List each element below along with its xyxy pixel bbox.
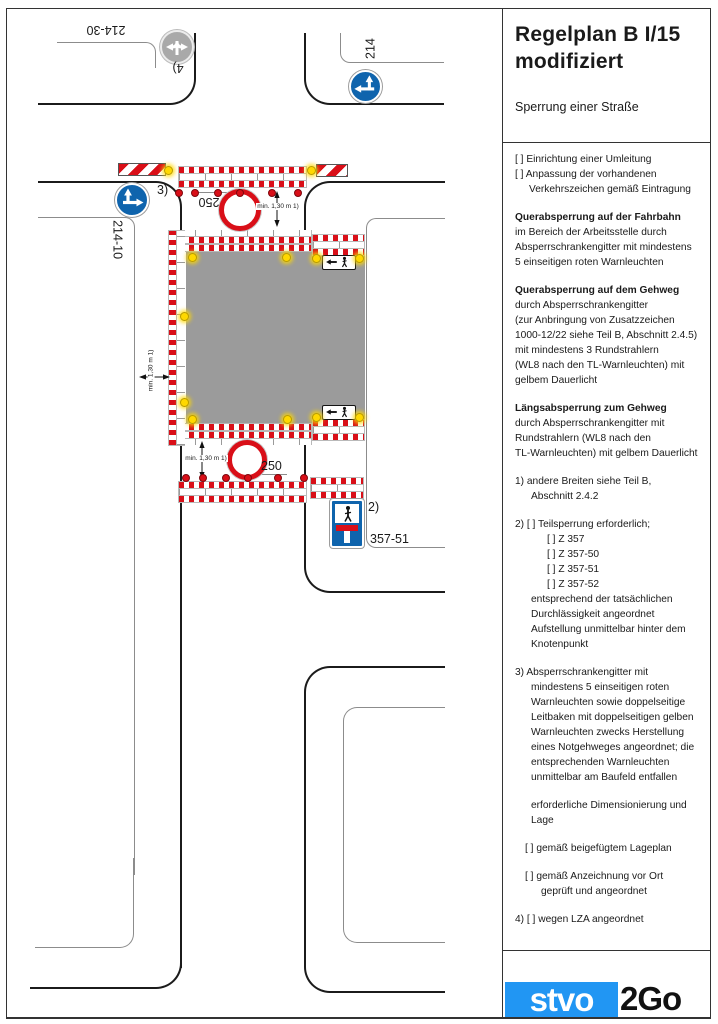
panel-text-line: TL-Warnleuchten) mit gelbem Dauerlicht (515, 446, 707, 461)
warning-lamp-red (182, 474, 190, 482)
warning-lamp-yellow (312, 254, 321, 263)
warning-lamp-red (236, 189, 244, 197)
panel-text-line: durch Absperrschrankengitter (515, 298, 707, 313)
barrier-fence (168, 230, 312, 252)
panel-text-line: Warnleuchten sowie doppelseitige (531, 695, 707, 710)
label-357-51: 357-51 (370, 533, 409, 546)
panel-text-line: 5 einseitigen roten Warnleuchten (515, 255, 707, 270)
barrier-fence (310, 477, 364, 499)
panel-text-line: entsprechend der tatsächlichen (531, 592, 707, 607)
label-214: 214 (364, 29, 377, 69)
warning-lamp-red (175, 189, 183, 197)
panel-text-line: Durchlässigkeit angeordnet (531, 607, 707, 622)
warning-lamp-yellow (307, 166, 316, 175)
panel-paragraph: [ ] Einrichtung einer Umleitung[ ] Anpas… (515, 152, 707, 197)
panel-text-line: [ ] Z 357 (547, 532, 707, 547)
panel-text-line: durch Absperrschrankengitter mit (515, 416, 707, 431)
panel-text-line: [ ] Z 357-50 (547, 547, 707, 562)
warning-lamp-yellow (355, 254, 364, 263)
notes-section: [ ] Einrichtung einer Umleitung[ ] Anpas… (503, 143, 711, 951)
panel-text-line: 2) [ ] Teilsperrung erforderlich; (515, 517, 707, 532)
logo-text-blue: stvo (530, 981, 594, 1019)
barrier-fence (178, 481, 307, 503)
panel-text-line: mindestens 5 einseitigen roten (531, 680, 707, 695)
warning-lamp-red (222, 474, 230, 482)
panel-text-line: 4) [ ] wegen LZA angeordnet (515, 912, 707, 927)
panel-text-line: geprüft und angeordnet (541, 884, 707, 899)
logo-section: stvo 2Go (503, 951, 711, 1017)
barrier-fence (312, 234, 365, 256)
panel-text-line: [ ] Anpassung der vorhandenen (515, 167, 707, 182)
work-area (186, 252, 365, 424)
label-footnote-2: 2) (368, 501, 379, 514)
panel-paragraph: [ ] gemäß Anzeichnung vor Ortgeprüft und… (515, 869, 707, 899)
warning-lamp-yellow (312, 413, 321, 422)
panel-paragraph: Längsabsperrung zum Gehwegdurch Absperrs… (515, 401, 707, 461)
panel-paragraph: 1) andere Breiten siehe Teil B,Abschnitt… (515, 474, 707, 504)
panel-paragraph: 4) [ ] wegen LZA angeordnet (515, 912, 707, 927)
warning-lamp-red (199, 474, 207, 482)
logo-stvo2go: stvo (505, 982, 618, 1017)
panel-text-line: Leitbaken mit doppelseitigen gelben (531, 710, 707, 725)
label-footnote-4: 4) (168, 61, 188, 74)
panel-text-line: Absperrschrankengitter mit mindestens (515, 240, 707, 255)
warning-lamp-yellow (180, 312, 189, 321)
panel-text-line: Rundstrahlern (WL8 nach den (515, 431, 707, 446)
panel-paragraph: erforderliche Dimensionierung undLage (515, 798, 707, 828)
warning-lamp-yellow (188, 253, 197, 262)
warning-lamp-yellow (164, 166, 173, 175)
sign-214-10-blue-arrows-icon (115, 183, 149, 217)
warning-lamp-yellow (188, 415, 197, 424)
panel-text-line: Längsabsperrung zum Gehweg (515, 401, 707, 416)
panel-text-line: unmittelbar am Baufeld entfallen (531, 770, 707, 785)
page-subtitle: Sperrung einer Straße (515, 100, 701, 114)
pedestrian-icon (335, 504, 359, 523)
barrier-fence-vertical (168, 230, 185, 446)
label-250-bottom: 250 (261, 460, 282, 473)
panel-text-line: (WL8 nach den TL-Warnleuchten) mit (515, 358, 707, 373)
panel-text-line: [ ] Z 357-52 (547, 577, 707, 592)
sign-357-51-dead-end-icon (330, 499, 364, 548)
page-title: Regelplan B I/15 modifiziert (515, 22, 701, 76)
panel-text-line: im Bereich der Arbeitsstelle durch (515, 225, 707, 240)
panel-text-line: [ ] gemäß beigefügtem Lageplan (525, 841, 707, 856)
info-panel: Regelplan B I/15 modifiziert Sperrung ei… (502, 8, 711, 1019)
panel-paragraph: Querabsperrung auf dem Gehwegdurch Abspe… (515, 283, 707, 388)
panel-text-line: [ ] Einrichtung einer Umleitung (515, 152, 707, 167)
barrier-fence (178, 166, 307, 188)
panel-paragraph: Querabsperrung auf der Fahrbahnim Bereic… (515, 210, 707, 270)
warning-lamp-yellow (180, 398, 189, 407)
barrier-board-diagonal (316, 164, 348, 177)
sidewalk-line (35, 858, 134, 948)
regelplan-sheet: { "theme": { "signal_red": "#d90f18", "s… (0, 0, 718, 1024)
plate-1000-12-icon (322, 255, 356, 270)
sidewalk-line (343, 707, 445, 943)
label-line (57, 42, 156, 68)
warning-lamp-red (294, 189, 302, 197)
title-section: Regelplan B I/15 modifiziert Sperrung ei… (503, 8, 711, 143)
panel-text-line: [ ] gemäß Anzeichnung vor Ort (525, 869, 707, 884)
panel-text-line: eines Notgehweges angeordnet; die (531, 740, 707, 755)
sign-214-30-gray-icon (160, 30, 194, 64)
panel-text-line: Warnleuchten zwecks Herstellung (531, 725, 707, 740)
warning-lamp-red (300, 474, 308, 482)
panel-text-line: Lage (531, 813, 707, 828)
logo-text-black: 2Go (620, 982, 681, 1017)
panel-text-line: (zur Anbringung von Zusatzzeichen (515, 313, 707, 328)
panel-text-line: entsprechenden Warnleuchten (531, 755, 707, 770)
warning-lamp-yellow (355, 413, 364, 422)
warning-lamp-yellow (282, 253, 291, 262)
panel-paragraph: 2) [ ] Teilsperrung erforderlich;[ ] Z 3… (515, 517, 707, 652)
panel-text-line: Verkehrszeichen gemäß Eintragung (529, 182, 707, 197)
label-214-30: 214-30 (76, 23, 136, 36)
label-min-width-left: min. 1,30 m 1) (149, 343, 156, 397)
label-footnote-3: 3) (157, 184, 168, 197)
warning-lamp-yellow (283, 415, 292, 424)
warning-lamp-red (268, 189, 276, 197)
barrier-fence (312, 419, 365, 441)
plate-1000-12-icon (322, 405, 356, 420)
panel-paragraph: 3) Absperrschrankengitter mitmindestens … (515, 665, 707, 785)
sidewalk-line (134, 278, 136, 875)
label-214-10: 214-10 (110, 216, 123, 264)
sidewalk-line (366, 218, 445, 548)
label-line (340, 33, 444, 63)
panel-paragraph: [ ] gemäß beigefügtem Lageplan (515, 841, 707, 856)
panel-text-line: [ ] Z 357-51 (547, 562, 707, 577)
panel-text-line: Abschnitt 2.4.2 (531, 489, 707, 504)
panel-text-line: Aufstellung unmittelbar hinter dem (531, 622, 707, 637)
panel-text-line: mit mindestens 3 Rundstrahlern (515, 343, 707, 358)
panel-text-line: gelbem Dauerlicht (515, 373, 707, 388)
panel-text-line: 1) andere Breiten siehe Teil B, (515, 474, 707, 489)
panel-text-line: Knotenpunkt (531, 637, 707, 652)
label-250-top: 250 (194, 195, 224, 208)
label-min-width-top: min. 1,30 m 1) (251, 204, 305, 211)
sign-214-blue-arrows-icon (349, 70, 382, 103)
warning-lamp-red (274, 474, 282, 482)
label-min-width-bottom: min. 1,30 m 1) (179, 456, 233, 463)
panel-text-line: erforderliche Dimensionierung und (531, 798, 707, 813)
barrier-board-diagonal (118, 163, 166, 176)
panel-text-line: 3) Absperrschrankengitter mit (515, 665, 707, 680)
panel-text-line: Querabsperrung auf dem Gehweg (515, 283, 707, 298)
panel-text-line: 1000-12/22 siehe Teil B, Abschnitt 2.4.5… (515, 328, 707, 343)
warning-lamp-red (244, 474, 252, 482)
panel-text-line: Querabsperrung auf der Fahrbahn (515, 210, 707, 225)
